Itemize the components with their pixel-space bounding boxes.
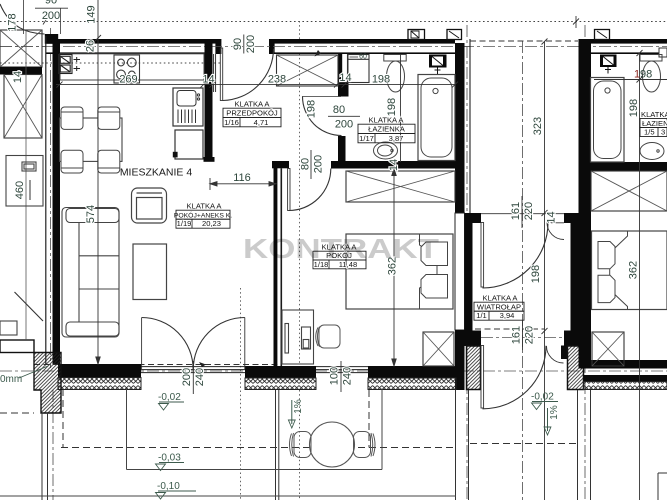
svg-text:80: 80 — [299, 158, 311, 170]
svg-text:KLATKA: KLATKA — [641, 110, 667, 119]
svg-text:14: 14 — [388, 159, 400, 171]
svg-text:KONTRAKT: KONTRAKT — [243, 233, 439, 264]
svg-text:-0,10: -0,10 — [157, 481, 180, 492]
svg-text:238: 238 — [268, 74, 286, 86]
svg-text:98: 98 — [640, 69, 652, 81]
svg-text:1/1: 1/1 — [476, 311, 487, 320]
svg-text:100: 100 — [328, 367, 340, 385]
svg-text:200: 200 — [42, 10, 60, 22]
svg-text:200: 200 — [181, 368, 193, 386]
svg-text:220: 220 — [523, 326, 535, 344]
svg-text:1/17: 1/17 — [359, 134, 374, 143]
svg-text:14: 14 — [545, 211, 557, 223]
svg-text:14: 14 — [339, 72, 351, 84]
svg-text:161: 161 — [510, 326, 522, 344]
svg-text:198: 198 — [628, 99, 640, 117]
svg-text:178: 178 — [6, 13, 18, 31]
svg-text:198: 198 — [386, 98, 398, 116]
svg-text:1/16: 1/16 — [224, 118, 239, 127]
svg-text:200: 200 — [335, 119, 353, 131]
svg-text:240: 240 — [341, 367, 353, 385]
svg-text:240: 240 — [194, 368, 206, 386]
svg-text:3,87: 3,87 — [389, 134, 404, 143]
svg-text:220: 220 — [523, 202, 535, 220]
svg-text:20,23: 20,23 — [202, 219, 221, 228]
svg-text:90: 90 — [45, 0, 57, 7]
svg-text:460: 460 — [14, 181, 26, 199]
svg-text:-0,02: -0,02 — [158, 392, 181, 403]
svg-text:269: 269 — [119, 74, 137, 86]
svg-text:198: 198 — [372, 74, 390, 86]
svg-text:3: 3 — [661, 128, 665, 137]
svg-text:-0,03: -0,03 — [158, 453, 181, 464]
svg-text:PRZEDPOKÓJ: PRZEDPOKÓJ — [226, 109, 278, 118]
svg-text:MIESZKANIE 4: MIESZKANIE 4 — [120, 167, 193, 179]
svg-text:1%: 1% — [293, 399, 304, 414]
svg-text:KLATKA A: KLATKA A — [187, 202, 223, 211]
svg-text:200: 200 — [245, 35, 257, 53]
svg-text:26: 26 — [84, 40, 96, 52]
svg-text:90: 90 — [232, 38, 244, 50]
svg-text:198: 198 — [305, 100, 317, 118]
svg-text:KLATKA A: KLATKA A — [235, 100, 271, 109]
svg-text:149: 149 — [85, 5, 97, 23]
svg-text:1/5: 1/5 — [644, 128, 655, 137]
svg-text:POKÓJ+ANEKS K.: POKÓJ+ANEKS K. — [174, 211, 232, 220]
svg-text:116: 116 — [233, 172, 251, 184]
svg-text:14: 14 — [202, 74, 214, 86]
svg-text:161: 161 — [510, 202, 522, 220]
svg-text:80: 80 — [333, 104, 345, 116]
svg-text:3,94: 3,94 — [500, 311, 515, 320]
svg-text:574: 574 — [85, 205, 97, 223]
svg-text:1%: 1% — [549, 405, 560, 420]
svg-text:200: 200 — [312, 155, 324, 173]
svg-text:4,71: 4,71 — [254, 118, 269, 127]
svg-text:ŁAZIENKA: ŁAZIENKA — [368, 125, 406, 134]
svg-text:0mm: 0mm — [0, 374, 22, 385]
svg-text:WIATROŁAP: WIATROŁAP — [477, 303, 521, 312]
svg-text:-0,02: -0,02 — [531, 392, 554, 403]
svg-text:362: 362 — [627, 261, 639, 279]
svg-text:323: 323 — [532, 117, 544, 135]
svg-text:KLATKA A: KLATKA A — [483, 294, 519, 303]
svg-text:14: 14 — [12, 71, 24, 83]
svg-text:60: 60 — [359, 54, 367, 61]
svg-text:1/19: 1/19 — [177, 219, 192, 228]
svg-text:198: 198 — [530, 265, 542, 283]
svg-text:KLATKA A: KLATKA A — [369, 116, 405, 125]
